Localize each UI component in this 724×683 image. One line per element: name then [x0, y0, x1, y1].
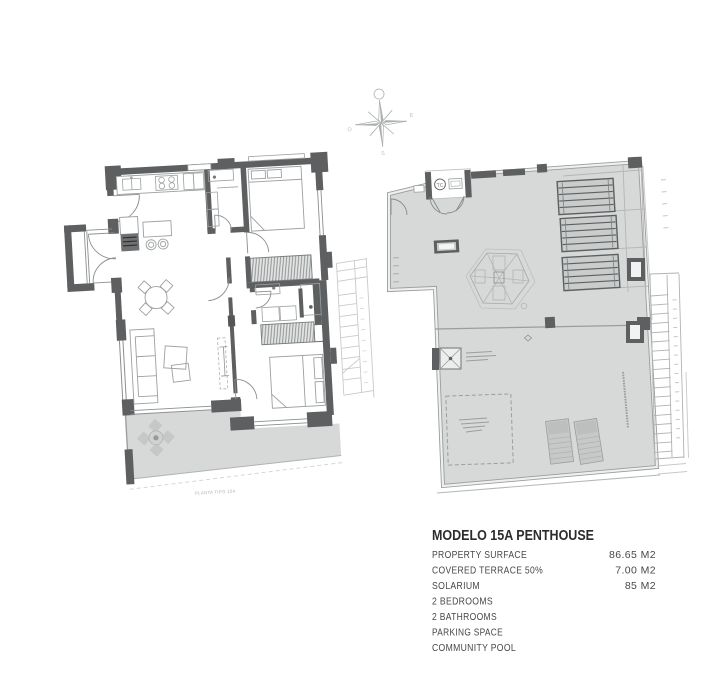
svg-text:86.65 M2: 86.65 M2: [609, 549, 656, 561]
svg-text:PROPERTY SURFACE: PROPERTY SURFACE: [432, 549, 527, 561]
svg-text:85 M2: 85 M2: [625, 580, 656, 592]
svg-text:TC: TC: [437, 183, 444, 189]
svg-text:2 BATHROOMS: 2 BATHROOMS: [432, 611, 497, 623]
svg-text:2 BEDROOMS: 2 BEDROOMS: [432, 596, 493, 608]
svg-text:COMMUNITY POOL: COMMUNITY POOL: [432, 642, 516, 654]
svg-text:7.00 M2: 7.00 M2: [615, 565, 656, 577]
svg-text:SOLARIUM: SOLARIUM: [432, 580, 480, 592]
svg-text:PARKING SPACE: PARKING SPACE: [432, 627, 503, 639]
svg-text:MODELO 15A PENTHOUSE: MODELO 15A PENTHOUSE: [432, 528, 594, 544]
svg-text:COVERED TERRACE 50%: COVERED TERRACE 50%: [432, 565, 543, 577]
